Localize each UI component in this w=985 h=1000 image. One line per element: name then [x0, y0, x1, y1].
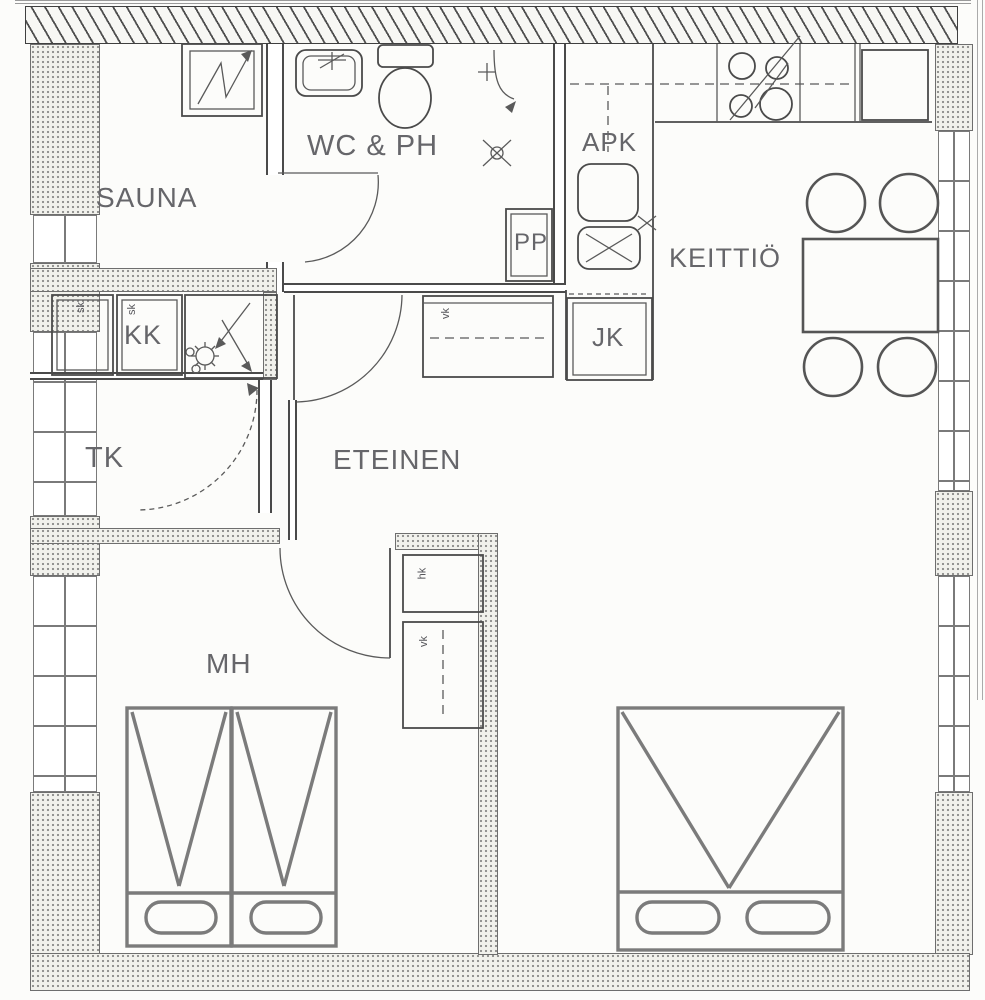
bathroom-sink: [296, 50, 362, 96]
door-eteinen: [294, 295, 402, 402]
closet-label-hk-mh: hk: [417, 568, 428, 580]
floor-drain-icon: [483, 140, 511, 166]
room-label-wc-ph: WC & PH: [307, 132, 438, 161]
kitchen-sink: [578, 164, 656, 269]
room-label-pp: PP: [514, 231, 548, 255]
dining-chairs: [804, 174, 938, 396]
single-bed-1: [127, 708, 231, 946]
room-label-tk: TK: [85, 444, 124, 473]
closet-label-sk-1: sk: [76, 302, 87, 313]
stove-icon: [729, 36, 800, 120]
mh-closets: [403, 555, 483, 728]
single-bed-2: [232, 708, 336, 946]
closet-label-sk-2: sk: [127, 304, 138, 315]
door-wc: [278, 173, 378, 262]
room-label-jk: JK: [592, 324, 624, 350]
sauna-stove-icon: [182, 44, 262, 116]
linework-overlay: [0, 0, 985, 1000]
room-label-apk: APK: [582, 129, 637, 155]
toilet: [378, 45, 433, 128]
room-label-sauna: SAUNA: [96, 184, 197, 212]
closet-label-vk-eteinen: vk: [441, 308, 452, 319]
room-label-kk: KK: [124, 322, 162, 349]
water-heater-icon: [186, 303, 252, 373]
door-tk: [137, 383, 259, 510]
double-bed: [618, 708, 843, 950]
dining-table: [803, 239, 938, 332]
closet-label-vk-mh: vk: [419, 636, 430, 647]
room-label-keittio: KEITTIÖ: [669, 245, 781, 272]
floor-plan: SAUNA WC & PH APK KEITTIÖ PP JK KK TK ET…: [0, 0, 985, 1000]
room-label-mh: MH: [206, 650, 252, 678]
shower-icon: [478, 50, 516, 113]
room-label-eteinen: ETEINEN: [333, 446, 461, 474]
door-mh: [280, 548, 390, 658]
